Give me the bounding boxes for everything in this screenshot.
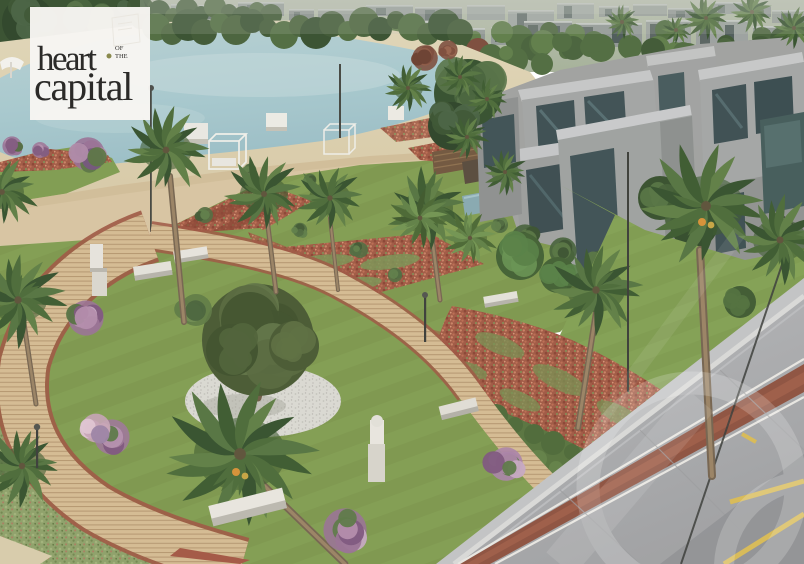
svg-text:capital: capital [34, 64, 133, 109]
svg-text:THE: THE [115, 53, 128, 60]
svg-text:OF: OF [115, 45, 124, 52]
